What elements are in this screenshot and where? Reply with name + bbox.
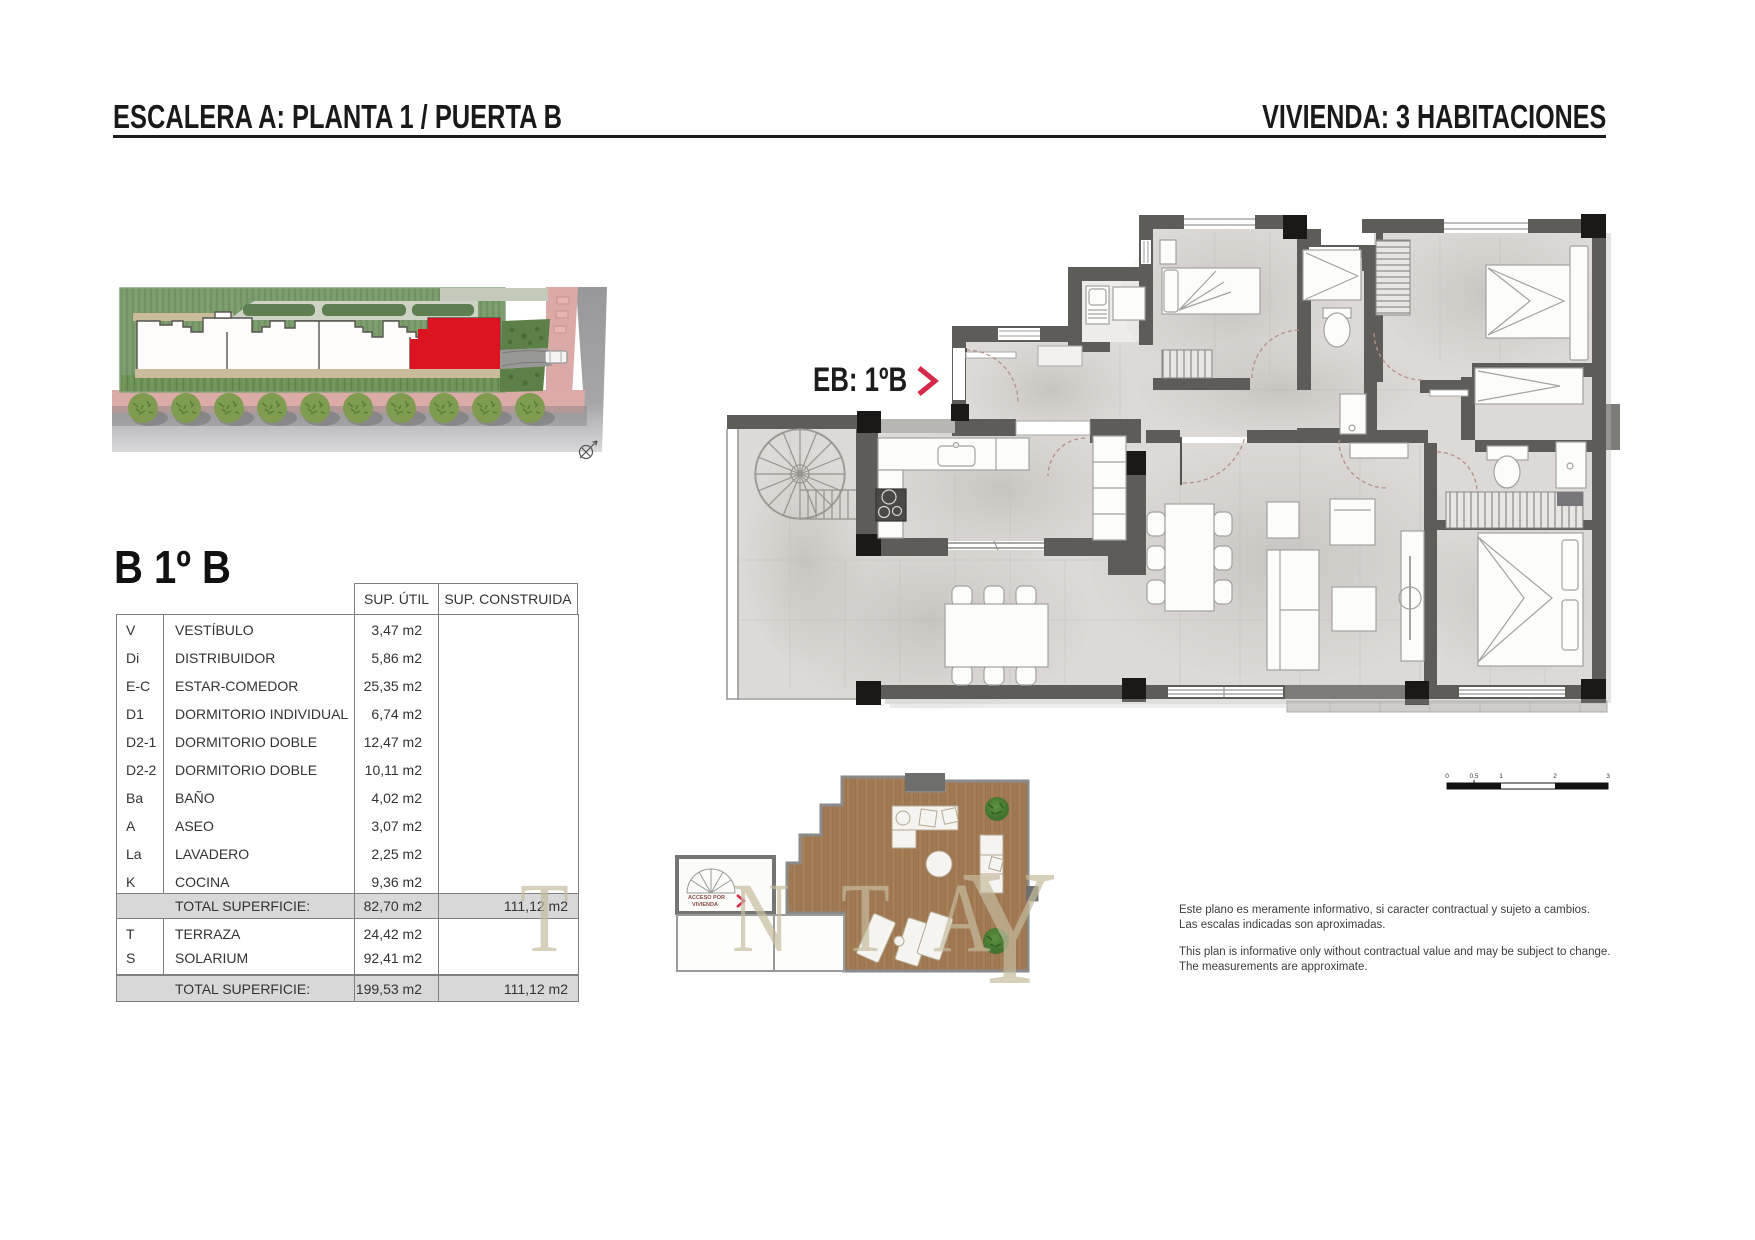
svg-text:EB: 1ºB: EB: 1ºB xyxy=(813,362,907,399)
svg-text:3: 3 xyxy=(1606,773,1610,780)
svg-text:2: 2 xyxy=(1553,773,1557,780)
svg-text:ACCESO POR: ACCESO POR xyxy=(688,895,725,901)
svg-text:1: 1 xyxy=(1499,773,1503,780)
svg-text:0.5: 0.5 xyxy=(1469,773,1478,780)
svg-text:VIVIENDA: VIVIENDA xyxy=(692,902,718,908)
svg-text:0: 0 xyxy=(1445,773,1449,780)
